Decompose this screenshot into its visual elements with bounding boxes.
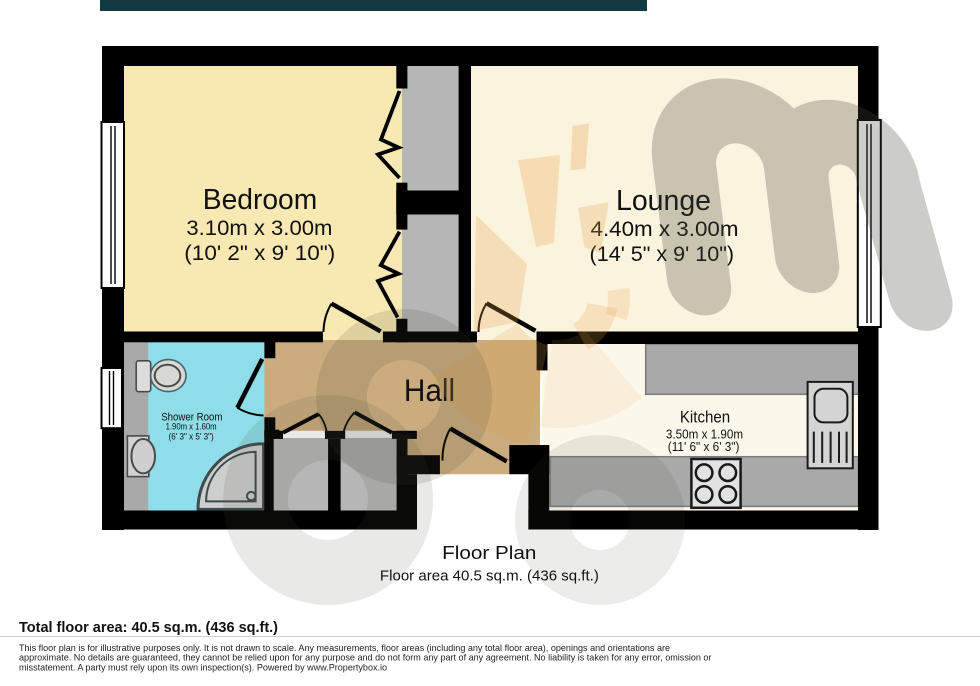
svg-text:Bedroom: Bedroom [203,184,318,216]
svg-text:(10' 2" x 9' 10"): (10' 2" x 9' 10") [184,241,335,265]
svg-text:(11' 6" x 6' 3"): (11' 6" x 6' 3") [668,439,740,454]
svg-text:misstatement. A party must rel: misstatement. A party must rely upon its… [19,662,387,672]
svg-text:Floor Plan: Floor Plan [442,542,536,563]
svg-text:1.90m x 1.60m: 1.90m x 1.60m [166,422,217,432]
svg-text:This floor plan is for illustr: This floor plan is for illustrative purp… [19,643,670,653]
svg-text:Floor area 40.5 sq.m. (436 sq.: Floor area 40.5 sq.m. (436 sq.ft.) [380,567,599,584]
svg-text:Kitchen: Kitchen [680,408,730,427]
svg-text:(6' 3" x 5' 3"): (6' 3" x 5' 3") [169,431,214,441]
svg-text:Total floor area: 40.5 sq.m. (: Total floor area: 40.5 sq.m. (436 sq.ft.… [19,620,278,636]
svg-text:approximate. No details are gu: approximate. No details are guaranteed, … [19,653,711,663]
svg-text:3.10m x 3.00m: 3.10m x 3.00m [186,216,332,240]
